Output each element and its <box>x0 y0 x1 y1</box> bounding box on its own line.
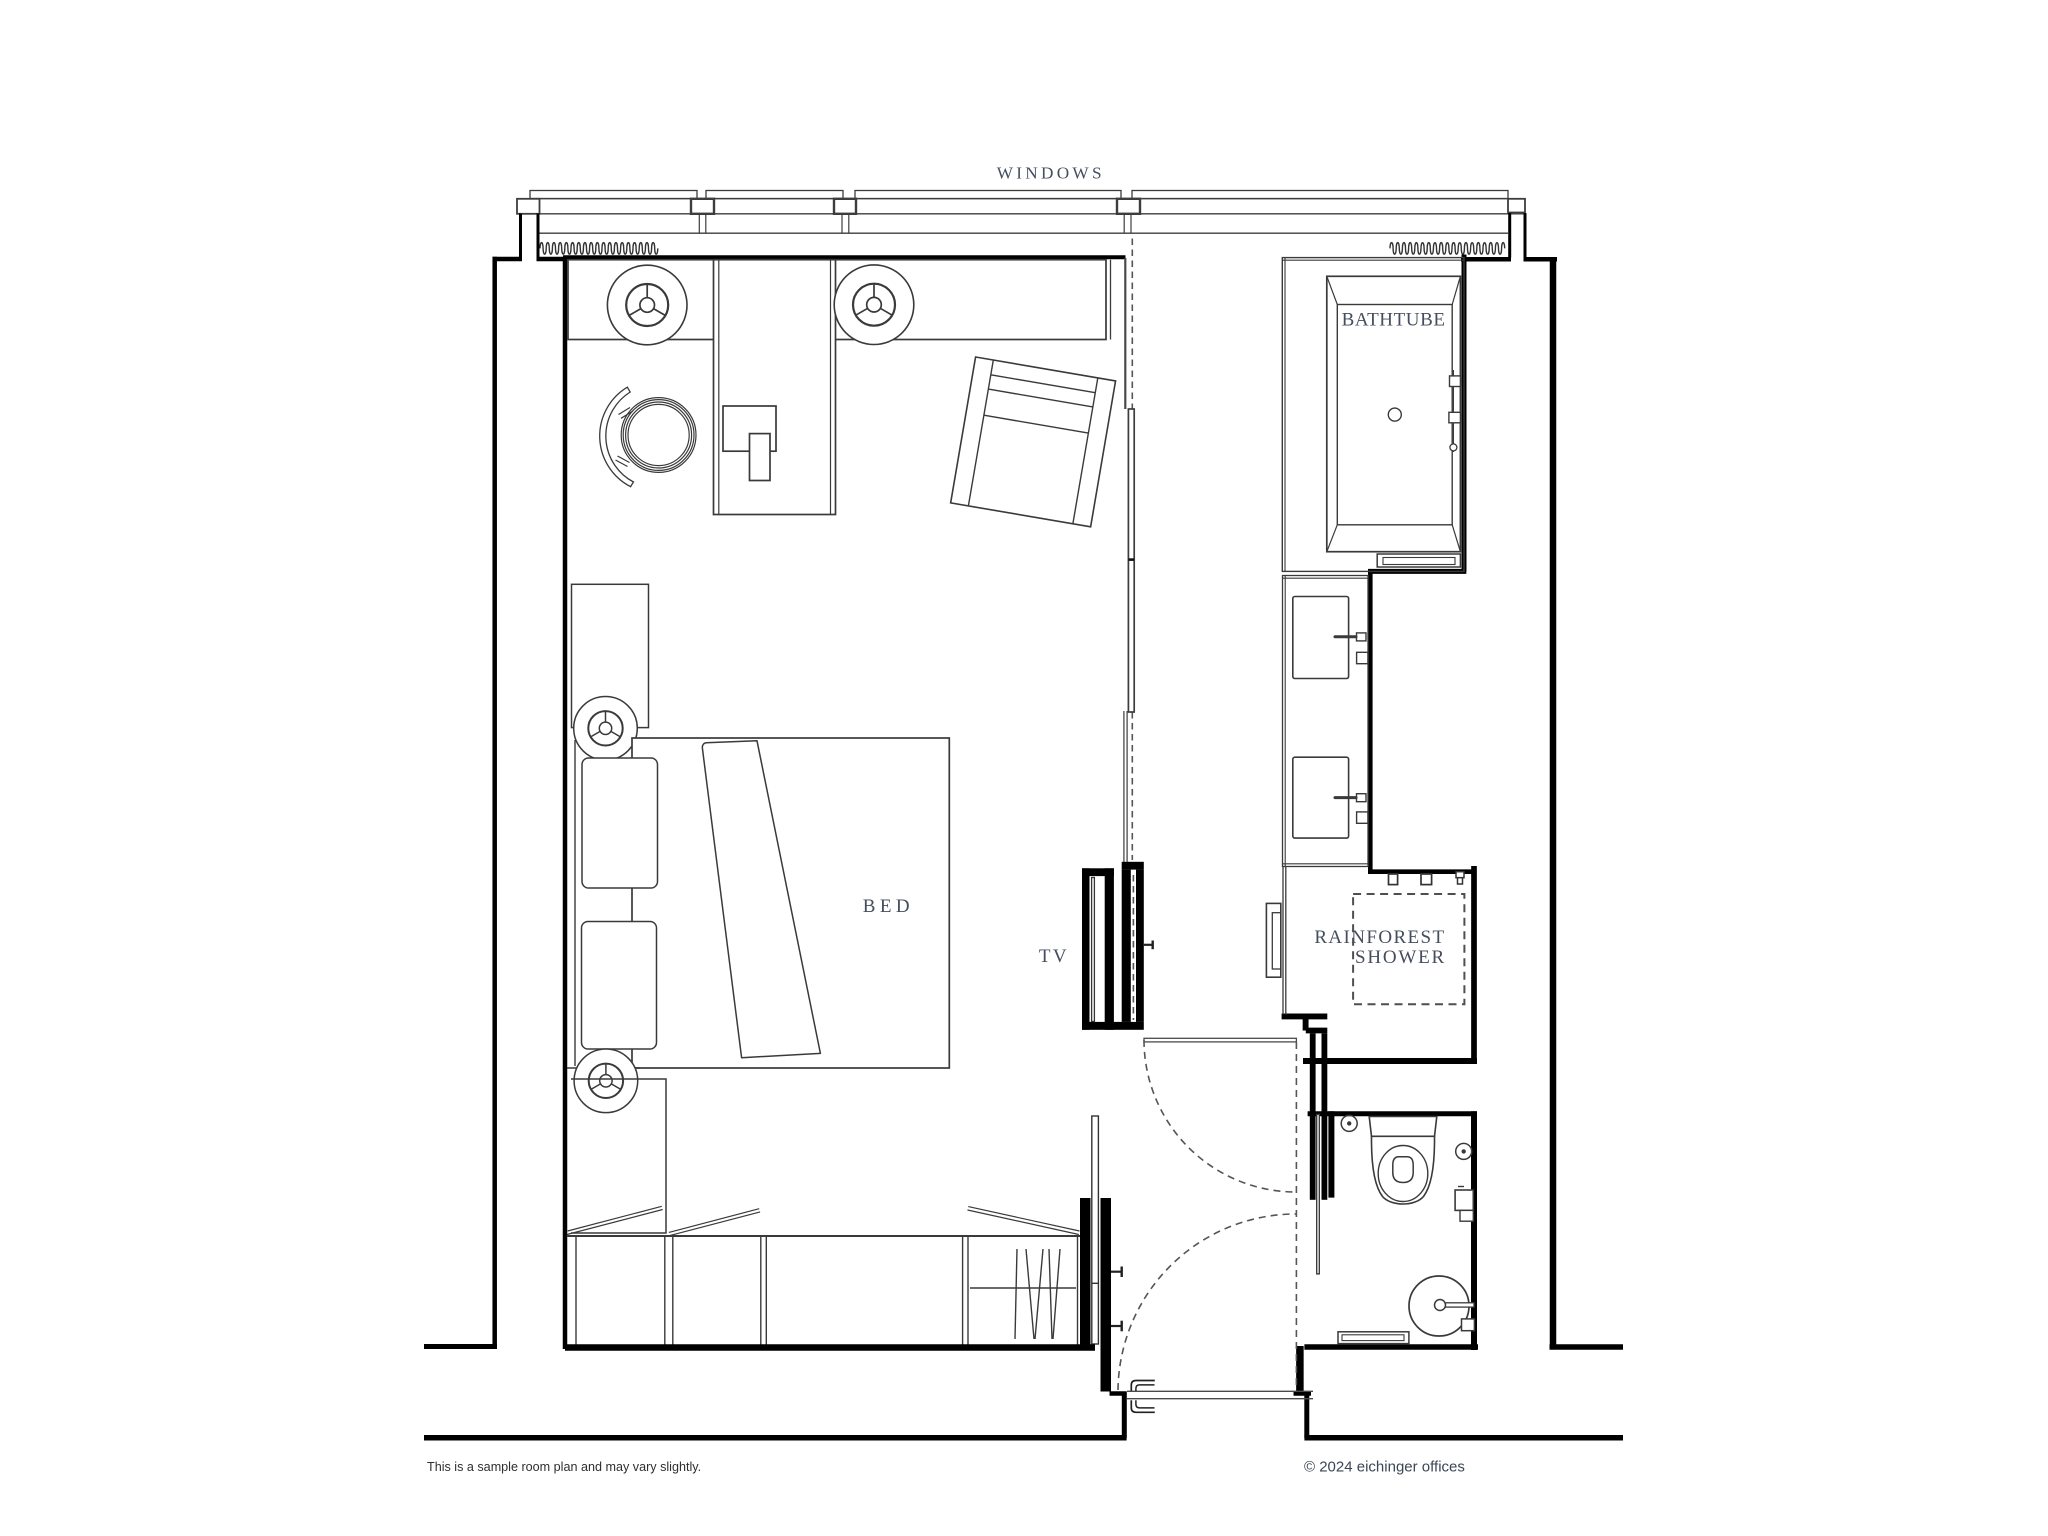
svg-text:This is a sample room plan and: This is a sample room plan and may vary … <box>427 1460 701 1474</box>
svg-text:RAINFOREST: RAINFOREST <box>1314 927 1445 948</box>
svg-text:SHOWER: SHOWER <box>1355 947 1446 968</box>
svg-text:© 2024 eichinger offices: © 2024 eichinger offices <box>1304 1459 1465 1476</box>
svg-text:BED: BED <box>863 896 914 917</box>
svg-text:TV: TV <box>1039 946 1069 967</box>
svg-text:WINDOWS: WINDOWS <box>997 164 1105 183</box>
svg-text:BATHTUBE: BATHTUBE <box>1342 310 1446 331</box>
